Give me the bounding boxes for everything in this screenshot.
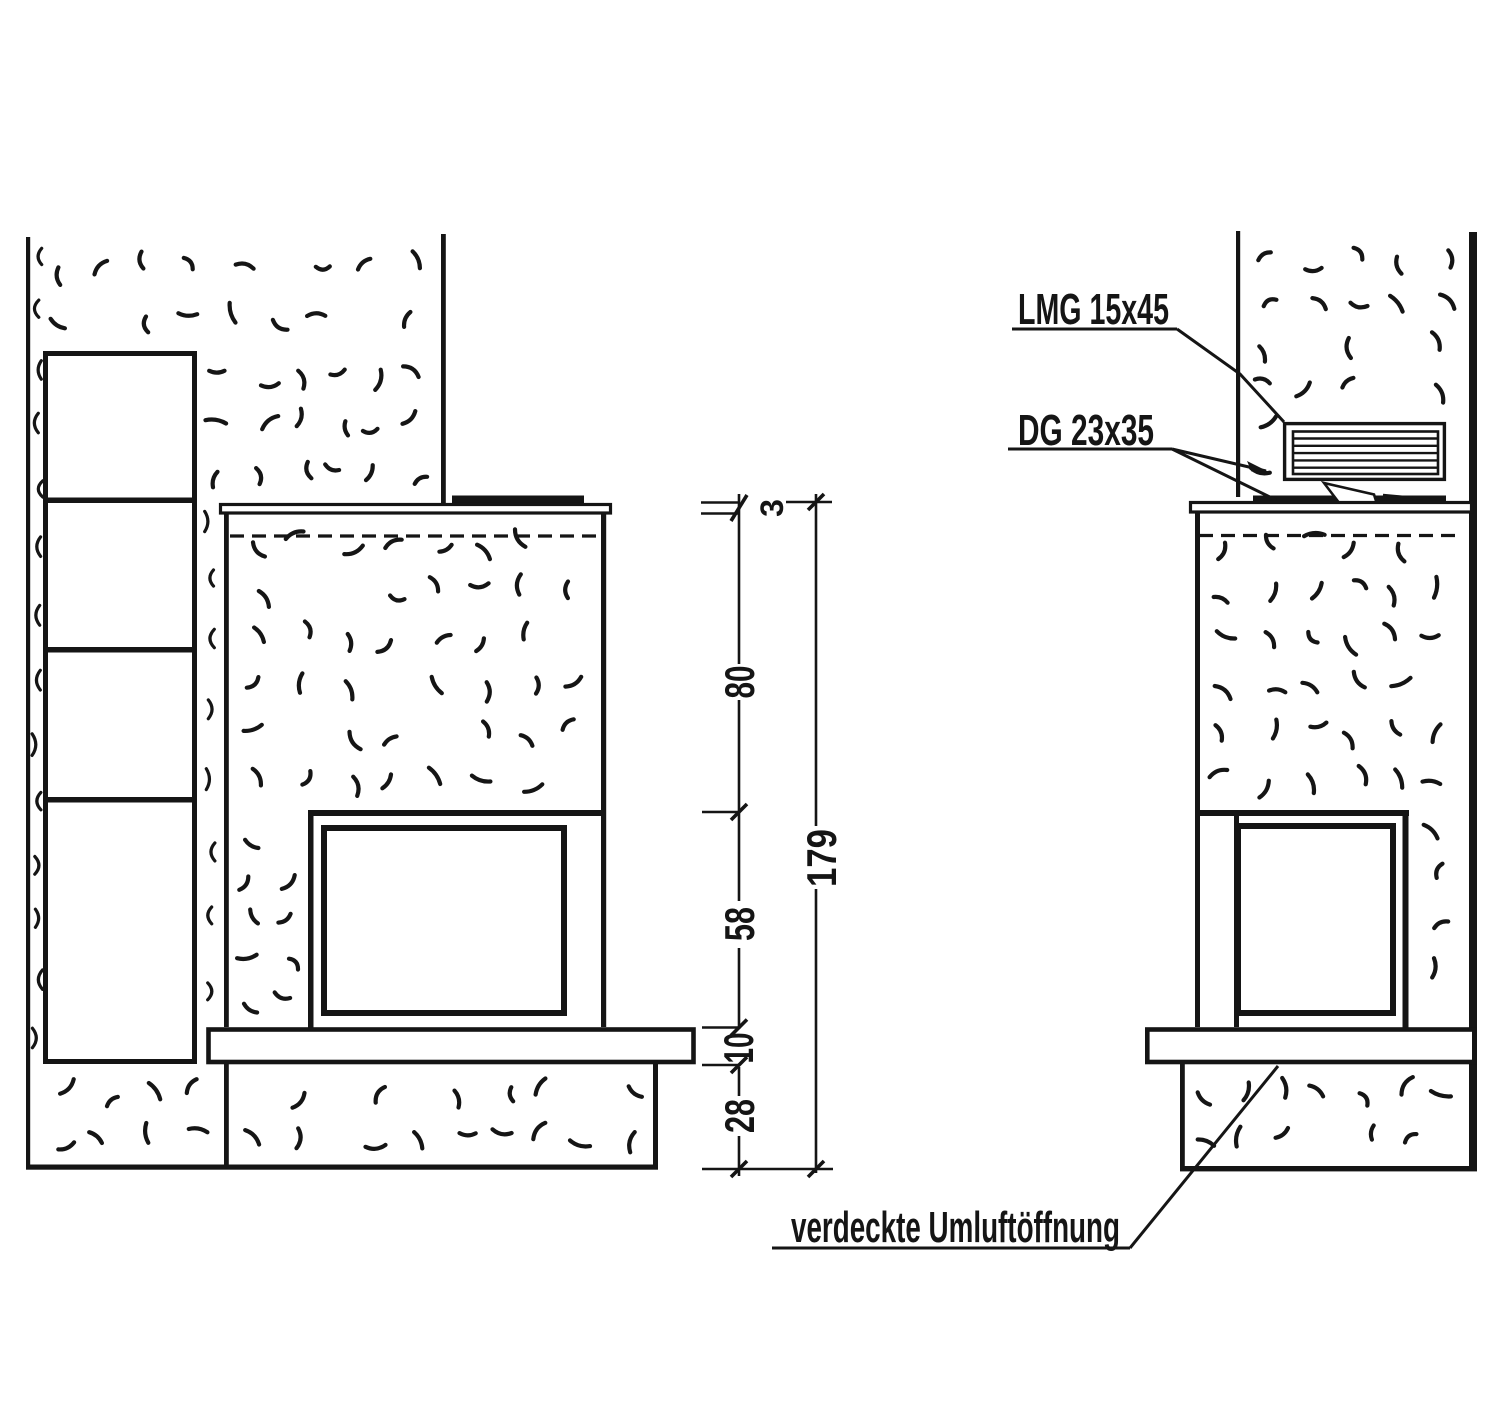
svg-text:verdeckte Umluftöffnung: verdeckte Umluftöffnung	[791, 1203, 1120, 1252]
svg-text:80: 80	[716, 666, 763, 699]
svg-text:LMG 15x45: LMG 15x45	[1018, 285, 1169, 334]
svg-text:28: 28	[716, 1099, 763, 1133]
svg-text:58: 58	[716, 907, 763, 941]
svg-text:179: 179	[798, 829, 845, 887]
svg-text:3: 3	[754, 499, 790, 517]
svg-text:10: 10	[715, 1033, 762, 1064]
